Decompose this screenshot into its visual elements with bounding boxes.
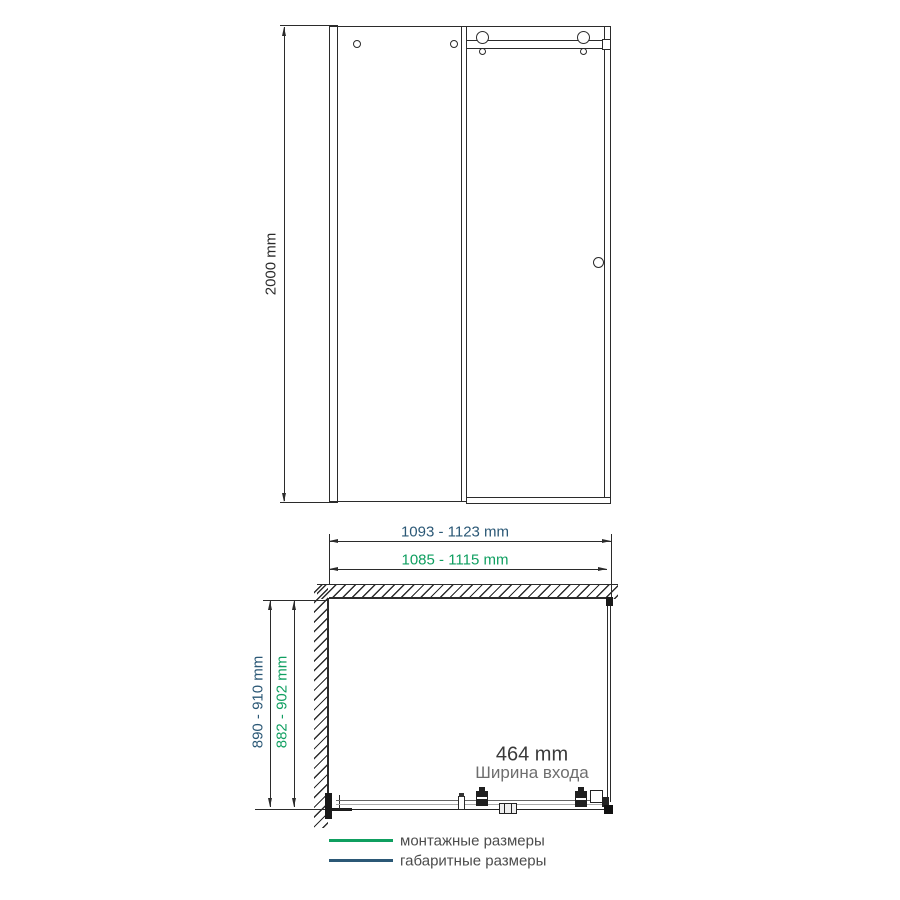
track-tick: [339, 795, 340, 809]
guide-bracket-line: [504, 804, 505, 813]
guide-bracket-line: [511, 804, 512, 813]
mounting-depth-label: 882 - 902 mm: [274, 656, 291, 749]
arrow-right-icon: [602, 539, 611, 543]
arrow-up-icon: [292, 601, 296, 610]
track-bracket-notch: [459, 793, 464, 797]
door-left-edge: [466, 26, 467, 503]
back-wall-face-line: [329, 597, 607, 599]
top-rail: [466, 40, 611, 49]
arrow-down-icon: [268, 798, 272, 807]
roller-carriage-cap: [479, 787, 485, 791]
fixed-glass-edge: [461, 26, 462, 501]
roller-carriage-cap: [578, 787, 584, 791]
overall-width-dim-line: [329, 541, 611, 542]
legend-swatch-mounting: [329, 839, 393, 842]
door-handle-icon: [593, 257, 604, 268]
arrow-up-icon: [268, 601, 272, 610]
track-corner-profile: [604, 805, 613, 814]
arrow-left-icon: [329, 567, 338, 571]
mounting-width-label: 1085 - 1115 mm: [402, 552, 509, 569]
mounting-depth-dim-line: [294, 601, 295, 807]
rail-end-cap: [602, 39, 611, 50]
left-wall-profile: [329, 26, 338, 502]
height-dim-label: 2000 mm: [263, 233, 280, 296]
roller-icon: [577, 31, 590, 44]
arrow-right-icon: [598, 567, 607, 571]
front-top-line: [329, 26, 611, 27]
legend-label-mounting: монтажные размеры: [400, 833, 545, 850]
guide-wheel-icon: [479, 48, 486, 55]
overall-width-label: 1093 - 1123 mm: [401, 524, 509, 541]
height-dim-line: [284, 27, 285, 501]
roller-carriage-slit: [576, 798, 586, 800]
side-panel-wall-bracket: [606, 597, 613, 606]
mounting-width-dim-line: [329, 569, 607, 570]
arrow-down-icon: [292, 798, 296, 807]
entrance-width-caption: Ширина входа: [475, 763, 588, 783]
dim-extension-line: [280, 502, 338, 503]
dim-extension-line: [263, 600, 328, 601]
dim-extension-line: [329, 534, 330, 585]
overall-depth-dim-line: [270, 601, 271, 807]
track-left-wall-profile: [325, 793, 332, 819]
overall-depth-label: 890 - 910 mm: [250, 656, 267, 749]
dimension-diagram: 2000 mm 1093 - 1123 mm 1085 - 1115 mm: [0, 0, 900, 900]
dim-extension-line: [255, 809, 333, 810]
track-bracket: [458, 796, 465, 810]
guide-wheel-icon: [580, 48, 587, 55]
bottom-rail: [466, 497, 611, 504]
left-wall-face-line: [327, 598, 329, 812]
track-rail-line: [336, 800, 608, 801]
fixed-panel-bottom-line: [329, 501, 466, 502]
arrow-left-icon: [329, 539, 338, 543]
track-rail-line: [336, 804, 608, 805]
roller-icon: [476, 31, 489, 44]
roller-carriage-slit: [477, 797, 487, 799]
screw-icon: [450, 40, 458, 48]
door-right-profile: [604, 26, 611, 503]
track-rail-line: [332, 809, 612, 810]
legend-label-overall: габаритные размеры: [400, 853, 546, 870]
guide-bracket: [499, 803, 517, 814]
side-glass-panel: [607, 606, 611, 802]
legend-swatch-overall: [329, 859, 393, 862]
screw-icon: [353, 40, 361, 48]
arrow-down-icon: [282, 493, 286, 502]
arrow-up-icon: [282, 27, 286, 36]
left-wall-hatch: [314, 584, 328, 828]
